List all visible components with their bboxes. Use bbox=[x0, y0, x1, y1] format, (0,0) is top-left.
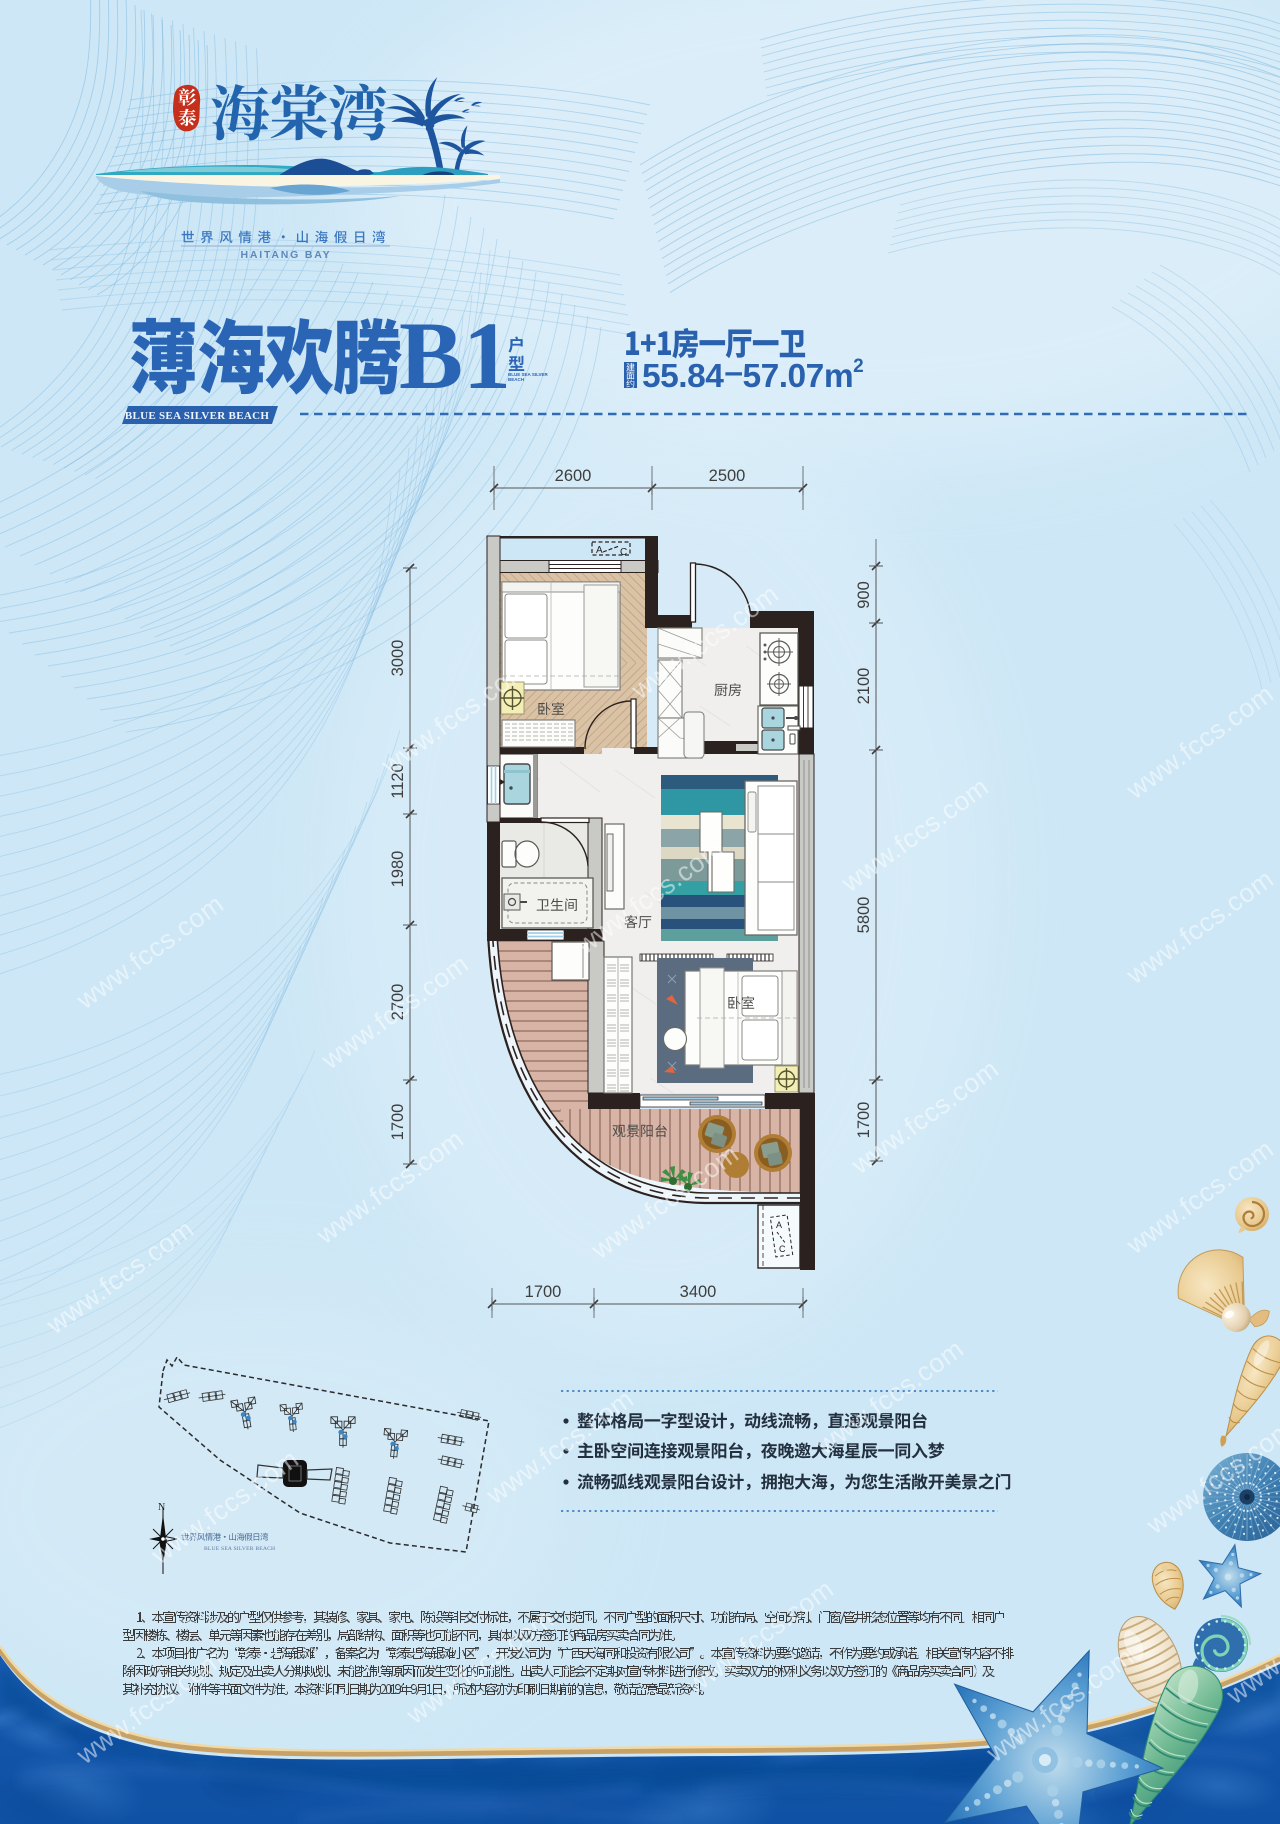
svg-text:BLUE SEA SILVER BEACH: BLUE SEA SILVER BEACH bbox=[204, 1546, 275, 1552]
svg-text:3400: 3400 bbox=[680, 1283, 717, 1301]
svg-text:C: C bbox=[620, 547, 627, 558]
svg-text:B1: B1 bbox=[399, 302, 511, 409]
svg-text:1700: 1700 bbox=[389, 1104, 407, 1141]
svg-text:2500: 2500 bbox=[709, 467, 746, 485]
svg-text:3000: 3000 bbox=[389, 640, 407, 677]
svg-text:1700: 1700 bbox=[525, 1283, 562, 1301]
svg-text:N: N bbox=[158, 1502, 165, 1513]
svg-text:A: A bbox=[596, 545, 603, 556]
svg-text:2100: 2100 bbox=[855, 668, 873, 705]
svg-text:1980: 1980 bbox=[389, 851, 407, 888]
svg-text:5800: 5800 bbox=[855, 897, 873, 934]
svg-text:55.84–57.07m2: 55.84–57.07m2 bbox=[642, 354, 863, 395]
svg-text:C: C bbox=[779, 1244, 786, 1254]
svg-text:HAITANG BAY: HAITANG BAY bbox=[241, 249, 332, 261]
svg-text:A: A bbox=[776, 1220, 782, 1230]
svg-text:BLUE SEA SILVER BEACH: BLUE SEA SILVER BEACH bbox=[125, 410, 270, 422]
svg-text:2600: 2600 bbox=[555, 467, 592, 485]
svg-text:1700: 1700 bbox=[855, 1102, 873, 1139]
svg-text:BEACH: BEACH bbox=[508, 377, 524, 382]
svg-text:900: 900 bbox=[855, 581, 873, 609]
